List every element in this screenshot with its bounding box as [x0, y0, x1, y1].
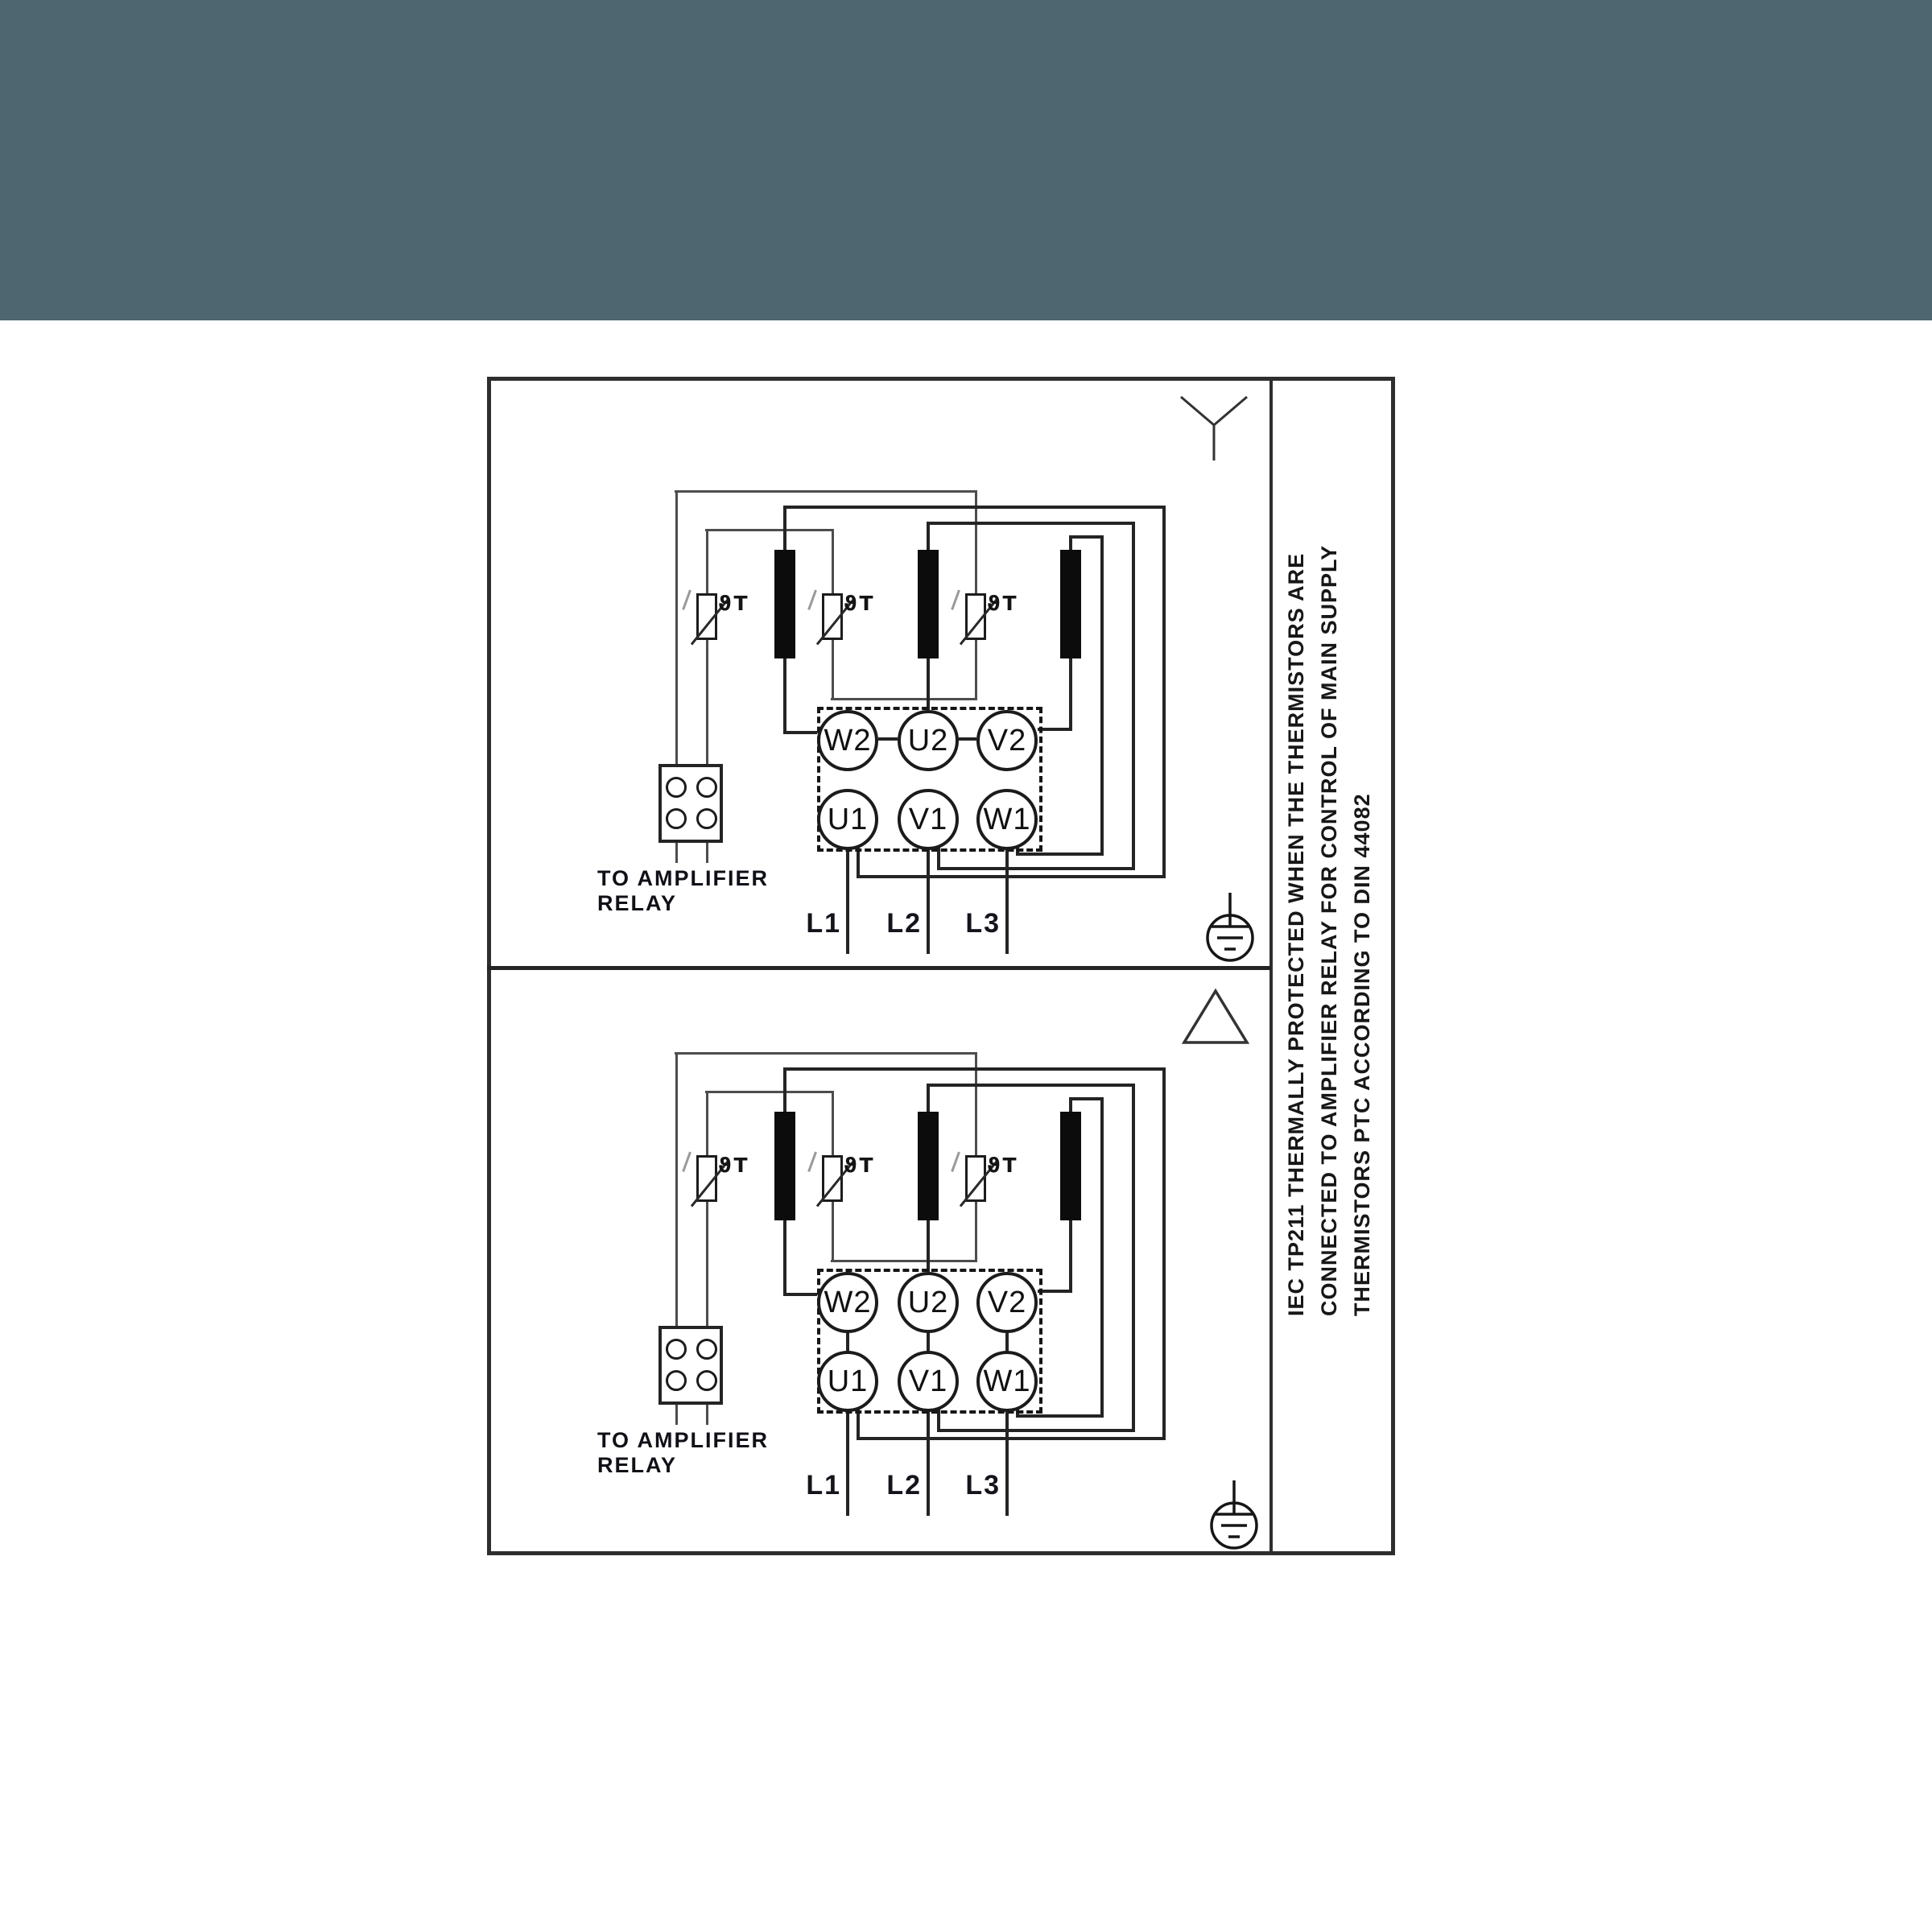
wire-segment	[1132, 1085, 1135, 1432]
wire-segment	[1132, 523, 1135, 870]
delta-connection-icon	[1175, 986, 1256, 1051]
terminal-w1-delta: W1	[976, 1351, 1038, 1412]
side-note-column: IEC TP211 THERMALLY PROTECTED WHEN THE T…	[1271, 377, 1395, 1555]
thermistor-mark: ϑT	[844, 592, 892, 615]
terminal-w2-delta: W2	[817, 1272, 878, 1333]
terminal-v1-delta: V1	[898, 1351, 959, 1412]
wire-segment	[675, 490, 977, 493]
label-l1-star: L1	[803, 908, 841, 939]
thermistor-mark: ϑT	[987, 592, 1035, 615]
wire-segment	[937, 867, 1135, 870]
wire-segment	[1005, 1412, 1009, 1516]
label-l1-delta: L1	[803, 1470, 841, 1501]
wire-segment	[705, 529, 834, 531]
terminal-w2-star: W2	[817, 710, 878, 771]
relay-note-line2-delta: RELAY	[597, 1453, 677, 1478]
thermistor-mark: ϑT	[718, 1154, 766, 1177]
wire-segment	[706, 1092, 708, 1155]
wire-segment	[783, 1220, 786, 1296]
earth-ground-icon	[1202, 890, 1258, 970]
wire-segment	[937, 1429, 1135, 1432]
wire-segment	[1162, 507, 1166, 878]
terminal-u2-star: U2	[898, 710, 959, 771]
wire-segment	[1100, 1099, 1104, 1418]
wire-segment	[927, 1084, 1135, 1087]
label-l2-delta: L2	[883, 1470, 922, 1501]
star-connection-icon	[1171, 386, 1260, 467]
relay-terminal-circle	[696, 808, 717, 829]
wire-segment	[927, 1220, 930, 1272]
wire-segment	[1162, 1069, 1166, 1440]
relay-terminal-circle	[666, 1339, 687, 1360]
side-note-line1: IEC TP211 THERMALLY PROTECTED WHEN THE T…	[1280, 616, 1313, 1316]
wire-segment	[1069, 1097, 1104, 1100]
terminal-u1-delta: U1	[817, 1351, 878, 1412]
terminal-v2-star: V2	[976, 710, 1038, 771]
relay-terminal-circle	[696, 777, 717, 798]
relay-note-line1-star: TO AMPLIFIER	[597, 866, 769, 891]
label-l3-delta: L3	[962, 1470, 1001, 1501]
wire-segment	[705, 1091, 834, 1093]
wire-segment	[675, 1052, 977, 1055]
terminal-u2-delta: U2	[898, 1272, 959, 1333]
relay-terminal-circle	[666, 1370, 687, 1391]
wire-segment	[1069, 535, 1104, 539]
wire-segment	[1038, 1290, 1072, 1293]
wire-segment	[831, 1260, 977, 1262]
wire-segment	[1016, 852, 1104, 856]
wire-segment	[1038, 728, 1072, 731]
wire-segment	[927, 523, 930, 550]
side-note-line3: THERMISTORS PTC ACCORDING TO DIN 44082	[1346, 616, 1379, 1316]
wire-segment	[927, 1412, 930, 1516]
wire-segment	[1069, 1099, 1072, 1112]
thermistor-mark: ϑT	[718, 592, 766, 615]
relay-terminal-circle	[696, 1339, 717, 1360]
wire-segment	[1069, 658, 1072, 731]
wire-segment	[832, 1202, 834, 1261]
wiring-diagram-screenshot: W2 U2 V2 U1 V1 W1 W2 U2 V2 U1 V1 W1 L1 L…	[0, 0, 1932, 1932]
relay-terminal-circle	[666, 808, 687, 829]
wire-segment	[927, 850, 930, 954]
wire-segment	[1100, 537, 1104, 856]
motor-winding-bar	[774, 550, 795, 658]
terminal-v1-star: V1	[898, 789, 959, 850]
wire-segment	[927, 522, 1135, 525]
relay-terminal-block	[658, 1326, 723, 1405]
wire-segment	[927, 658, 930, 710]
motor-winding-bar	[1060, 550, 1081, 658]
wire-segment	[783, 658, 786, 734]
wire-segment	[783, 506, 1166, 509]
wire-segment	[832, 530, 834, 593]
terminal-v2-delta: V2	[976, 1272, 1038, 1333]
wire-segment	[857, 1437, 1166, 1440]
thermistor-mark: ϑT	[844, 1154, 892, 1177]
wire-segment	[846, 1412, 849, 1516]
terminal-w1-star: W1	[976, 789, 1038, 850]
wire-segment	[1016, 1414, 1104, 1418]
wire-segment	[975, 1202, 977, 1261]
label-l2-star: L2	[883, 908, 922, 939]
wire-segment	[783, 1069, 786, 1112]
wire-segment	[783, 731, 817, 734]
top-banner	[0, 0, 1932, 320]
motor-winding-bar	[918, 1112, 939, 1220]
relay-terminal-circle	[696, 1370, 717, 1391]
wire-segment	[1005, 850, 1009, 954]
wire-segment	[857, 875, 1166, 878]
wire-segment	[832, 640, 834, 699]
wire-segment	[783, 507, 786, 550]
terminal-u1-star: U1	[817, 789, 878, 850]
wire-segment	[927, 1085, 930, 1112]
wire-segment	[706, 530, 708, 593]
wire-segment	[1069, 1220, 1072, 1293]
thermistor-mark: ϑT	[987, 1154, 1035, 1177]
side-note-line2: CONNECTED TO AMPLIFIER RELAY FOR CONTROL…	[1313, 616, 1346, 1316]
relay-note-line1-delta: TO AMPLIFIER	[597, 1428, 769, 1453]
wire-segment	[783, 1293, 817, 1296]
wire-segment	[846, 850, 849, 954]
motor-winding-bar	[918, 550, 939, 658]
relay-note-line2-star: RELAY	[597, 891, 677, 916]
motor-winding-bar	[1060, 1112, 1081, 1220]
wire-segment	[831, 698, 977, 700]
relay-terminal-circle	[666, 777, 687, 798]
earth-ground-icon	[1206, 1477, 1262, 1558]
wire-segment	[975, 640, 977, 699]
wire-segment	[783, 1067, 1166, 1071]
wire-segment	[832, 1092, 834, 1155]
section-divider	[487, 966, 1271, 970]
wire-segment	[1069, 537, 1072, 550]
motor-winding-bar	[774, 1112, 795, 1220]
label-l3-star: L3	[962, 908, 1001, 939]
relay-terminal-block	[658, 764, 723, 843]
